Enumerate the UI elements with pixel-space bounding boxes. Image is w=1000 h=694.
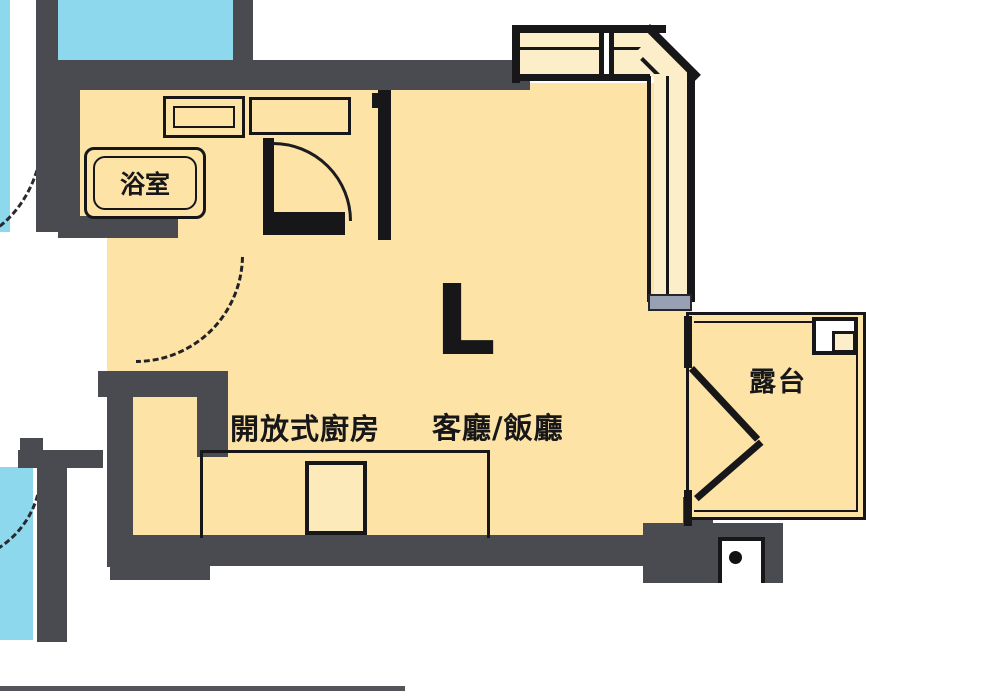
bathroom-partition-wall (378, 90, 391, 240)
kitchen-counter-top-edge (200, 450, 490, 453)
bathroom-sink-basin (173, 106, 235, 128)
kitchen-sink-square (305, 461, 367, 535)
balcony-door-stub-bottom (684, 490, 692, 526)
wall-top (36, 60, 530, 90)
window-right-outer-frame (687, 72, 695, 302)
wall-corridor-bar (18, 450, 103, 468)
kitchen-counter-left-edge (200, 450, 203, 538)
bathroom-label: 浴室 (120, 165, 170, 201)
living-dining-label: 客廳/飯廳 (432, 405, 564, 447)
site-boundary-line (0, 686, 405, 691)
common-area-top (55, 0, 233, 62)
balcony-door-stub-top (684, 316, 692, 368)
balcony-label: 露台 (749, 360, 807, 399)
drain-pipe-dot (729, 551, 742, 564)
bathtub: 浴室 (84, 147, 206, 219)
window-right-mullion-line (666, 76, 669, 302)
window-sill-tab (648, 294, 692, 311)
exterior-bottom (0, 583, 1000, 694)
wall-bottom-left-step (110, 535, 210, 580)
wall-entry-bar (98, 371, 228, 397)
bathroom-partition-anchor (372, 93, 387, 108)
open-kitchen-label: 開放式廚房 (230, 406, 380, 448)
wall-left-upper-vertical (36, 0, 58, 232)
wall-corridor-nub (20, 438, 43, 452)
kitchen-counter-right-edge (487, 450, 490, 538)
window-top-inner-frame (517, 74, 650, 81)
bathroom-door-leaf (263, 138, 274, 218)
window-top-divider-b (609, 33, 614, 77)
wall-bathroom-bottom (58, 216, 178, 238)
balcony-corner-box-inner (832, 331, 856, 353)
bathroom-counter (249, 97, 351, 135)
window-right-inner-frame (647, 76, 651, 302)
wall-corridor-vertical (37, 468, 67, 642)
wall-common-right-vertical (233, 0, 253, 63)
unit-letter: L (434, 272, 496, 369)
window-right-glass (654, 74, 687, 302)
floor-plan: 浴室 L 客廳/飯廳 開放式廚房 露台 (0, 0, 1000, 694)
wall-kitchen-stub (197, 397, 228, 457)
